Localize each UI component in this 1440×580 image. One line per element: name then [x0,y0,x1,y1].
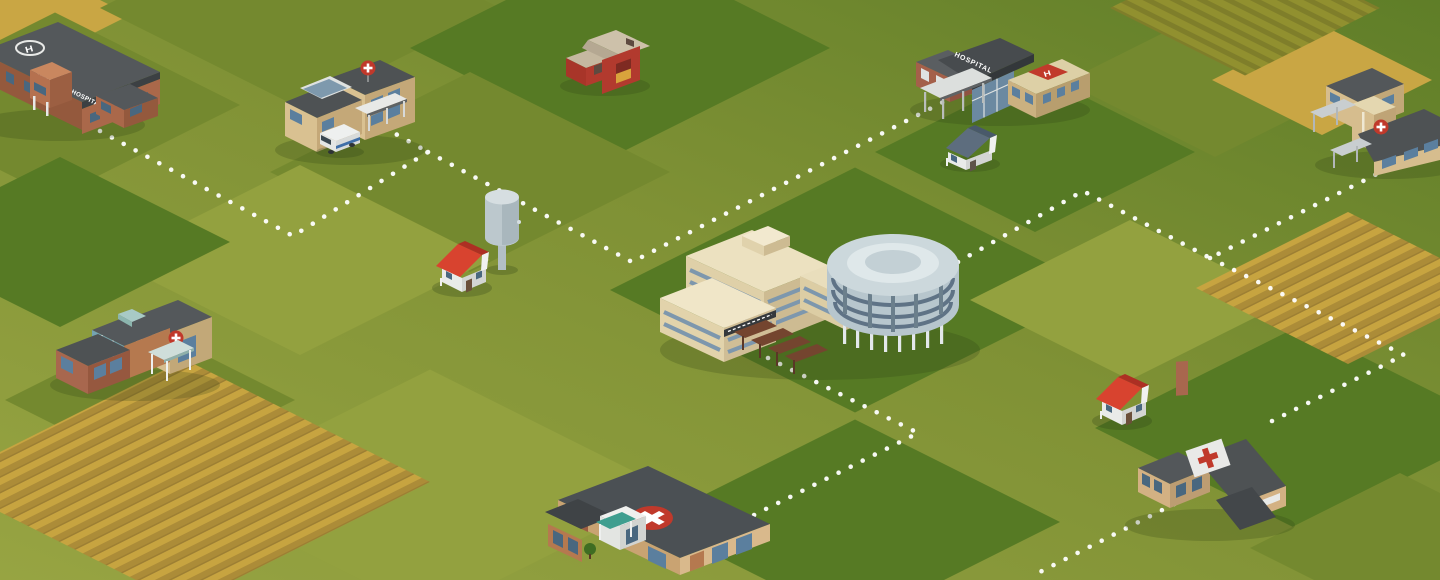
chimney [1176,361,1188,396]
map-canvas: H MEMORIAL HOSPITAL [0,0,1440,580]
red-cross-sign-icon-ne [1374,120,1389,135]
healthcare-network-map: H MEMORIAL HOSPITAL [0,0,1440,580]
tree [584,543,596,555]
